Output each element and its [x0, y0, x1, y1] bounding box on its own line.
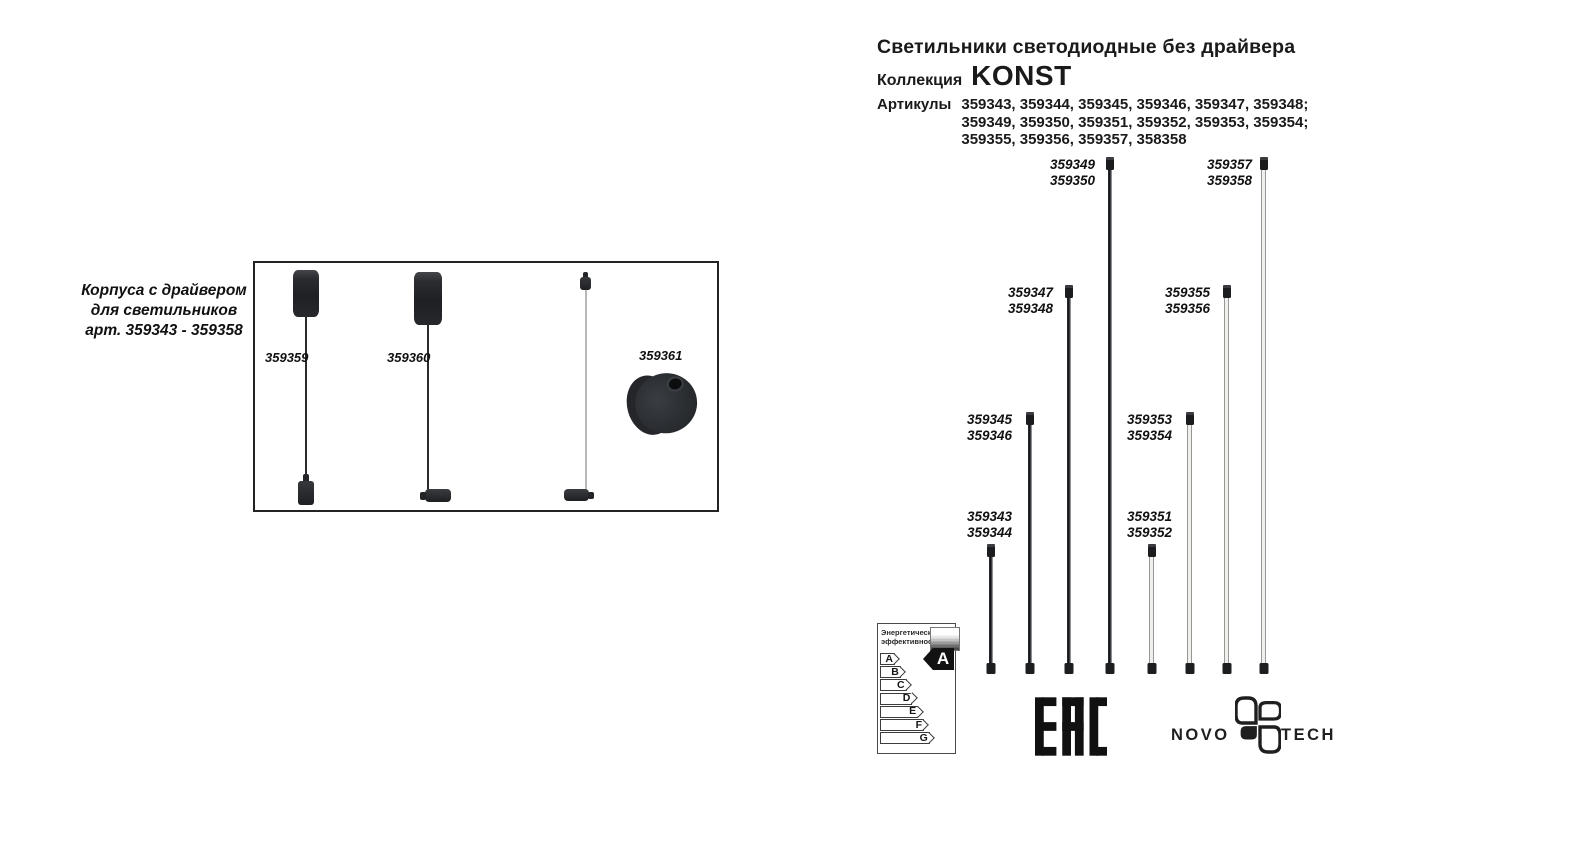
- articles-line: 359349, 359350, 359351, 359352, 359353, …: [961, 114, 1308, 132]
- rod-article-number: 359345: [967, 412, 1012, 428]
- housing-caption: Корпуса с драйвером для светильников арт…: [66, 281, 262, 341]
- collection-name: KONST: [971, 60, 1072, 92]
- rod-article-number: 359346: [967, 428, 1012, 444]
- pendant-endcap-359359: [298, 481, 314, 505]
- rod-article-number: 359358: [1207, 173, 1252, 189]
- cable-kit-connector: [564, 489, 589, 501]
- articles-list: 359343, 359344, 359345, 359346, 359347, …: [961, 96, 1308, 149]
- led-rod-359345: [1028, 414, 1032, 670]
- energy-class-letter: A: [885, 653, 893, 665]
- eac-logo: [1035, 697, 1107, 756]
- rod-article-number: 359350: [1050, 173, 1095, 189]
- caption-line: арт. 359343 - 359358: [66, 321, 262, 341]
- figure-label-359359: 359359: [265, 350, 308, 365]
- led-rod-359353: [1187, 414, 1192, 670]
- energy-class-letter: F: [916, 719, 922, 731]
- energy-class-arrow-A: A: [880, 653, 895, 665]
- energy-class-letter: E: [909, 705, 916, 717]
- articles-line: 359343, 359344, 359345, 359346, 359347, …: [961, 96, 1308, 114]
- rod-label-359355: 359355359356: [1165, 285, 1210, 316]
- rod-article-number: 359357: [1207, 157, 1252, 173]
- rod-article-number: 359355: [1165, 285, 1210, 301]
- energy-class-arrow-B: B: [880, 666, 901, 678]
- energy-class-letter: D: [903, 692, 911, 704]
- led-rod-359349: [1108, 159, 1112, 670]
- energy-class-letter: B: [891, 666, 899, 678]
- energy-class-arrow-C: C: [880, 679, 907, 691]
- caption-line: Корпуса с драйвером: [66, 281, 262, 301]
- drum-housing-359361: [620, 362, 706, 443]
- energy-class-arrow-E: E: [880, 706, 918, 718]
- pendant-canopy-359360: [414, 272, 442, 325]
- articles-line: 359355, 359356, 359357, 358358: [961, 131, 1308, 149]
- rod-article-number: 359343: [967, 509, 1012, 525]
- rod-label-359357: 359357359358: [1207, 157, 1252, 188]
- energy-class-arrow-F: F: [880, 719, 924, 731]
- cable-kit-cap: [580, 277, 591, 290]
- rod-article-number: 359354: [1127, 428, 1172, 444]
- energy-class-arrow-G: G: [880, 732, 930, 744]
- pendant-cable-359359: [305, 316, 307, 476]
- collection-label: Коллекция: [877, 72, 962, 90]
- rod-label-359345: 359345359346: [967, 412, 1012, 443]
- pendant-connector-359360: [425, 489, 451, 502]
- page-title: Светильники светодиодные без драйвера: [877, 36, 1295, 59]
- rod-article-number: 359356: [1165, 301, 1210, 317]
- pendant-cable-359360: [427, 324, 429, 490]
- led-rod-359357: [1261, 159, 1266, 670]
- rod-article-number: 359353: [1127, 412, 1172, 428]
- energy-scale-thumbnail: [930, 627, 960, 651]
- articles-label: Артикулы: [877, 96, 951, 149]
- led-rod-359343: [989, 546, 993, 670]
- cable-kit-nub: [588, 492, 594, 499]
- rod-article-number: 359348: [1008, 301, 1053, 317]
- energy-class-arrow-D: D: [880, 693, 912, 705]
- rod-article-number: 359352: [1127, 525, 1172, 541]
- led-rod-359351: [1149, 546, 1154, 670]
- figure-label-359360: 359360: [387, 350, 430, 365]
- led-rod-359355: [1224, 287, 1229, 670]
- collection-row: Коллекция KONST: [877, 60, 1072, 92]
- energy-label: Энергетическая эффективность A ABCDEFG: [877, 623, 956, 754]
- brand-novo-text: NOVO: [1171, 726, 1230, 745]
- rod-article-number: 359347: [1008, 285, 1053, 301]
- rod-article-number: 359344: [967, 525, 1012, 541]
- led-rod-359347: [1067, 287, 1071, 670]
- pendant-canopy-359359: [293, 270, 319, 317]
- rod-label-359347: 359347359348: [1008, 285, 1053, 316]
- rod-article-number: 359349: [1050, 157, 1095, 173]
- energy-rating-badge: A: [923, 648, 954, 670]
- rod-label-359351: 359351359352: [1127, 509, 1172, 540]
- energy-class-letter: G: [920, 732, 928, 744]
- catalog-page: Светильники светодиодные без драйвера Ко…: [0, 0, 1587, 858]
- rod-label-359343: 359343359344: [967, 509, 1012, 540]
- figure-label-359361: 359361: [639, 348, 682, 363]
- brand-clover-icon: [1235, 696, 1281, 754]
- energy-class-letter: C: [897, 679, 905, 691]
- caption-line: для светильников: [66, 301, 262, 321]
- cable-kit-wire: [585, 290, 587, 490]
- pendant-nub-359360: [420, 492, 426, 500]
- rod-article-number: 359351: [1127, 509, 1172, 525]
- rod-label-359349: 359349359350: [1050, 157, 1095, 188]
- brand-tech-text: TECH: [1281, 726, 1336, 745]
- rod-label-359353: 359353359354: [1127, 412, 1172, 443]
- articles-row: Артикулы 359343, 359344, 359345, 359346,…: [877, 96, 1308, 149]
- housing-box: 359359 359360 359361: [253, 261, 719, 512]
